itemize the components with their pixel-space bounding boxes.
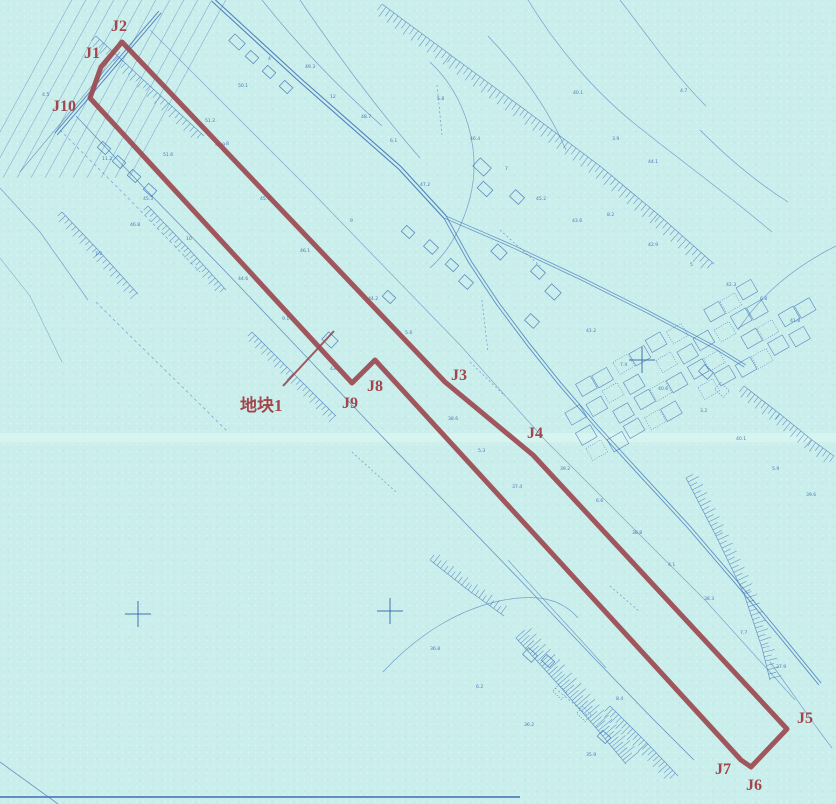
vertex-label-J7: J7 xyxy=(715,761,731,778)
map-border-lines xyxy=(0,762,520,804)
elevation-label: 36.8 xyxy=(430,646,440,652)
elevation-label: 39.2 xyxy=(560,466,570,472)
elevation-label: 6.8 xyxy=(760,296,767,302)
elevation-label: 45.3 xyxy=(143,196,153,202)
elevation-label: 3.2 xyxy=(700,408,707,414)
elevation-label: 44.1 xyxy=(648,159,658,165)
elevation-label: 5.6 xyxy=(405,330,412,336)
elevation-label: 6.6 xyxy=(596,498,603,504)
elevation-label: 6.2 xyxy=(476,684,483,690)
elevation-label: 38.3 xyxy=(704,596,714,602)
elevation-label: 11.2 xyxy=(102,156,112,162)
elevation-label: 5 xyxy=(690,262,693,268)
elevation-label: 35.9 xyxy=(586,752,596,758)
cadastral-map-canvas: 4.551.2846.87.251.650.1449.31248.76.147.… xyxy=(0,0,836,804)
vertex-label-J5: J5 xyxy=(797,710,813,727)
elevation-label: 51.2 xyxy=(205,118,215,124)
elevation-label: 5.3 xyxy=(478,448,485,454)
elevation-label: 42.3 xyxy=(726,282,736,288)
elevation-label: 48.7 xyxy=(361,114,371,120)
elevation-label: 45.2 xyxy=(536,196,546,202)
elevation-label: 40.1 xyxy=(736,436,746,442)
elevation-label: 3.9 xyxy=(612,136,619,142)
vertex-labels: J2J3J4J5J6J7J8J9J10J1 xyxy=(52,18,813,794)
grid-crosses xyxy=(125,347,655,627)
elevation-label: 40.6 xyxy=(658,386,668,392)
elevation-label: 46.1 xyxy=(300,248,310,254)
buildings-layer xyxy=(97,34,729,744)
elevation-label: 36.2 xyxy=(524,722,534,728)
elevation-label: 8 xyxy=(226,141,229,147)
elevation-label: 51.6 xyxy=(163,152,173,158)
elevation-label: 47.2 xyxy=(420,182,430,188)
elevation-label: 41.8 xyxy=(790,318,800,324)
elevation-label: 44.6 xyxy=(238,276,248,282)
elevation-label: 4 xyxy=(268,56,271,62)
elevation-label: 12 xyxy=(330,94,336,100)
elevation-label: 37.9 xyxy=(776,664,786,670)
elevation-label: 8.4 xyxy=(616,696,623,702)
elevation-label: 38.6 xyxy=(448,416,458,422)
vertex-label-J3: J3 xyxy=(451,367,467,384)
elevation-label: 4.1 xyxy=(668,562,675,568)
tiny-labels-layer: 4.551.2846.87.251.650.1449.31248.76.147.… xyxy=(42,56,816,758)
elevation-label: 46.4 xyxy=(470,136,480,142)
elevation-label: 6.1 xyxy=(390,138,397,144)
elevation-label: 7 xyxy=(505,166,508,172)
vertex-label-J10: J10 xyxy=(52,98,76,115)
elevation-label: 10 xyxy=(186,236,192,242)
elevation-label: 40.1 xyxy=(573,90,583,96)
plot-label: 地块1 xyxy=(240,395,283,415)
dashed-paths xyxy=(352,85,640,716)
elevation-label: 7.4 xyxy=(620,362,627,368)
elevation-label: 43.6 xyxy=(572,218,582,224)
vertex-label-J4: J4 xyxy=(527,425,543,442)
elevation-label: 7.7 xyxy=(740,630,747,636)
elevation-label: 49.3 xyxy=(305,64,315,70)
elevation-label: 37.4 xyxy=(512,484,522,490)
vertex-label-J2: J2 xyxy=(111,18,127,35)
elevation-label: 8.2 xyxy=(607,212,614,218)
elevation-label: 4.5 xyxy=(42,92,49,98)
elevation-label: 5.9 xyxy=(772,466,779,472)
elevation-label: 38.8 xyxy=(632,530,642,536)
vertex-label-J6: J6 xyxy=(746,777,762,794)
elevation-label: 41.2 xyxy=(586,328,596,334)
elevation-label: 7.2 xyxy=(95,251,102,257)
boundary-polygon xyxy=(90,42,787,767)
elevation-label: 9 xyxy=(350,218,353,224)
elevation-label: 39.6 xyxy=(806,492,816,498)
fold-crease xyxy=(0,433,836,444)
elevation-label: 42.9 xyxy=(648,242,658,248)
vertex-label-J1: J1 xyxy=(84,45,100,62)
vertex-label-J9: J9 xyxy=(342,395,358,412)
vertex-label-J8: J8 xyxy=(367,378,383,395)
elevation-label: 46.8 xyxy=(130,222,140,228)
elevation-label: 4.7 xyxy=(680,88,687,94)
elevation-label: 50.1 xyxy=(238,83,248,89)
elevation-label: 5.8 xyxy=(437,96,444,102)
scanned-cadastral-map: 4.551.2846.87.251.650.1449.31248.76.147.… xyxy=(0,0,836,804)
slope-hachures xyxy=(58,4,834,779)
